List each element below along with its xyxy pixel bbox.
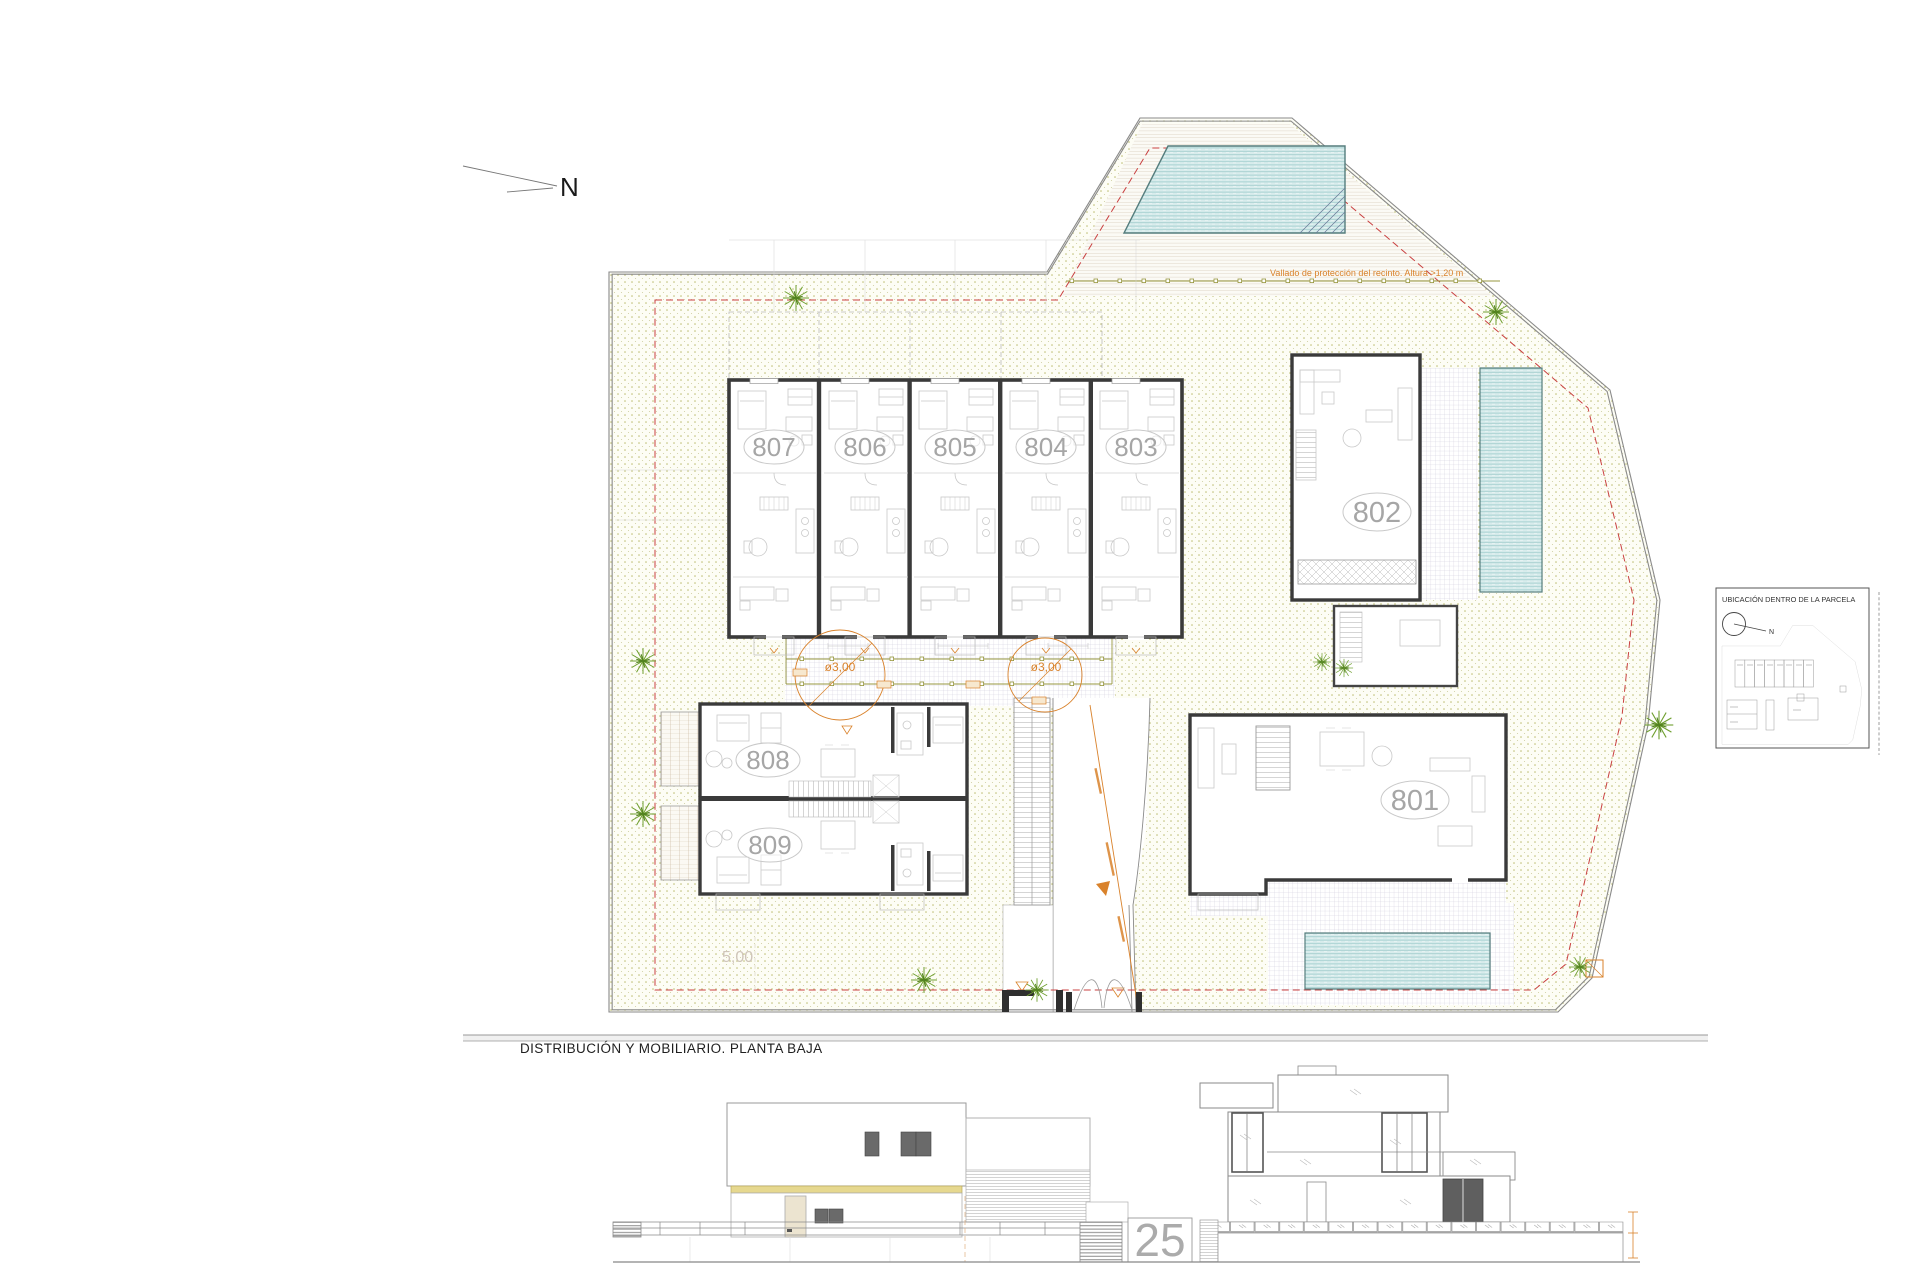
legend-box: UBICACIÓN DENTRO DE LA PARCELA N (1716, 588, 1879, 755)
garage-gate (1080, 1222, 1122, 1262)
legend-north-label: N (1769, 629, 1774, 636)
unit-801-label: 801 (1391, 785, 1439, 817)
floor-plan-sheet: Vallado de protección del recinto. Altur… (0, 0, 1920, 1280)
site-plan: Vallado de protección del recinto. Altur… (463, 118, 1673, 1012)
unit-805-label: 805 (933, 432, 976, 462)
row-house-block (729, 379, 1182, 656)
pool-802 (1480, 368, 1542, 592)
slab-band (731, 1186, 962, 1193)
unit-803-label: 803 (1114, 432, 1157, 462)
elevation-left: 25 (613, 1103, 1192, 1266)
unit-808-label: 808 (746, 745, 789, 775)
north-arrow: N (463, 166, 579, 202)
unit-806-label: 806 (843, 432, 886, 462)
unit-809-label: 809 (748, 830, 791, 860)
unit-804-label: 804 (1024, 432, 1067, 462)
pool-bottom (1305, 933, 1490, 989)
north-label: N (560, 172, 579, 202)
villa-801: 801 (1190, 715, 1506, 910)
street-number: 25 (1134, 1214, 1185, 1266)
section-title: DISTRIBUCIÓN Y MOBILIARIO. PLANTA BAJA (520, 1041, 823, 1056)
duplex-808-809: 808 809 (661, 704, 967, 910)
circle-dim-1: ø3,00 (825, 660, 856, 674)
circle-dim-2: ø3,00 (1031, 660, 1062, 674)
unit-802-label: 802 (1353, 497, 1401, 529)
setback-dim-label: 5,00 (722, 949, 753, 966)
legend-title: UBICACIÓN DENTRO DE LA PARCELA (1722, 595, 1855, 604)
fence-note: Vallado de protección del recinto. Altur… (1270, 268, 1463, 278)
unit-807-label: 807 (752, 432, 795, 462)
